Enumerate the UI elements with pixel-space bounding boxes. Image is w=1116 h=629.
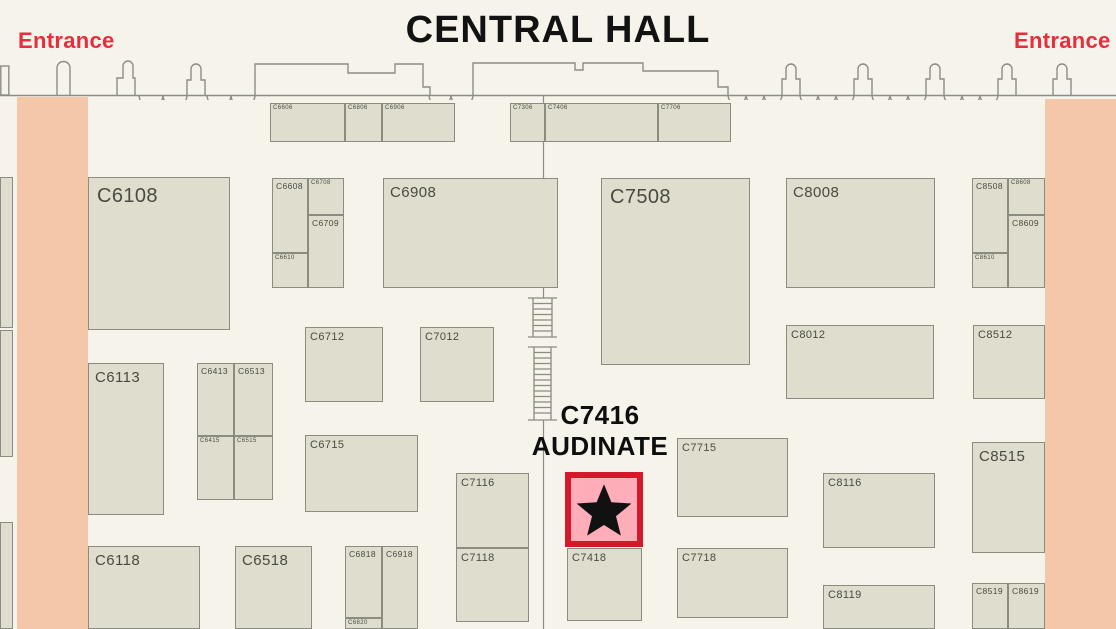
booth-label: [1, 523, 12, 524]
booth-C8610: C8610: [972, 253, 1008, 288]
booth-label: C6806: [346, 104, 381, 111]
booth-label: C8515: [973, 443, 1044, 465]
booth-label: C6906: [383, 104, 454, 111]
booth-label: C6908: [384, 179, 557, 201]
booth-C6413: C6413: [197, 363, 234, 436]
booth-label: C8608: [1009, 179, 1044, 186]
booth-edge: [0, 522, 13, 629]
booth-C8508: C8508: [972, 178, 1008, 253]
booth-C8608: C8608: [1008, 178, 1045, 215]
booth-C6515: C6515: [234, 436, 273, 500]
booth-label: C7118: [457, 549, 528, 564]
booth-C7508: C7508: [601, 178, 750, 365]
booth-C6820: C6820: [345, 618, 382, 629]
booth-C8515: C8515: [972, 442, 1045, 553]
booth-label: C7116: [457, 474, 528, 489]
booth-label: C8619: [1009, 584, 1044, 596]
booth-label: C7012: [421, 328, 493, 343]
entrance-label-left: Entrance: [18, 28, 115, 54]
booth-C8008: C8008: [786, 178, 935, 288]
booth-C8609: C8609: [1008, 215, 1045, 288]
booth-C6708: C6708: [308, 178, 344, 215]
booth-C6818: C6818: [345, 546, 382, 618]
booth-C8512: C8512: [973, 325, 1045, 399]
booth-C8116: C8116: [823, 473, 935, 548]
booth-C6118: C6118: [88, 546, 200, 629]
booth-edge: [0, 330, 13, 457]
booth-C6709: C6709: [308, 215, 344, 288]
booth-label: C8508: [973, 179, 1007, 191]
booth-C7406: C7406: [545, 103, 658, 142]
booth-label: C7706: [659, 104, 730, 111]
floor-map: C6606C6806C6906C7306C7406C7706C6108C6608…: [0, 0, 1116, 629]
booth-C6908: C6908: [383, 178, 558, 288]
booth-C6906: C6906: [382, 103, 455, 142]
booth-C6513: C6513: [234, 363, 273, 436]
booth-C6610: C6610: [272, 253, 308, 288]
booth-label: C6610: [273, 254, 307, 261]
booth-C6518: C6518: [235, 546, 312, 629]
booth-C7718: C7718: [677, 548, 788, 618]
booth-label: C7508: [602, 179, 749, 209]
stairs-icon-upper: [528, 298, 557, 337]
booth-label: C8012: [787, 326, 933, 341]
booth-label: C7306: [511, 104, 544, 111]
booth-label: C6715: [306, 436, 417, 451]
booth-edge: [0, 177, 13, 328]
booth-label: C6518: [236, 547, 311, 569]
booth-label: C8610: [973, 254, 1007, 261]
booth-C8119: C8119: [823, 585, 935, 629]
booth-C6113: C6113: [88, 363, 164, 515]
booth-C6806: C6806: [345, 103, 382, 142]
booth-C7116: C7116: [456, 473, 529, 548]
booth-C8519: C8519: [972, 583, 1008, 629]
booth-C6712: C6712: [305, 327, 383, 402]
booth-label: C8116: [824, 474, 934, 489]
booth-C7118: C7118: [456, 548, 529, 622]
entrance-zone-right: [1045, 99, 1116, 629]
booth-label: C8512: [974, 326, 1044, 341]
booth-label: C6918: [383, 547, 417, 559]
booth-C6918: C6918: [382, 546, 418, 629]
booth-C7706: C7706: [658, 103, 731, 142]
booth-label: C6113: [89, 364, 163, 386]
entrance-label-right: Entrance: [1014, 28, 1111, 54]
booth-label: C6712: [306, 328, 382, 343]
booth-label: C8119: [824, 586, 934, 601]
booth-label: C6818: [346, 547, 381, 559]
entrance-zone-left: [17, 97, 88, 629]
highlight-booth-id: C7416: [490, 400, 710, 431]
booth-C7012: C7012: [420, 327, 494, 402]
booth-label: C6415: [198, 437, 233, 444]
highlight-callout: C7416 AUDINATE: [490, 400, 710, 462]
booth-label: C6515: [235, 437, 272, 444]
booth-C6415: C6415: [197, 436, 234, 500]
highlight-booth[interactable]: [565, 472, 643, 547]
booth-label: [1, 331, 12, 332]
booth-label: C6108: [89, 178, 229, 208]
booth-label: C6708: [309, 179, 343, 186]
booth-label: [1, 178, 12, 179]
booth-label: C6606: [271, 104, 344, 111]
booth-label: C6709: [309, 216, 343, 228]
booth-label: C8609: [1009, 216, 1044, 228]
booth-label: C6118: [89, 547, 199, 569]
booth-label: C6513: [235, 364, 272, 376]
booth-C6715: C6715: [305, 435, 418, 512]
booth-C8619: C8619: [1008, 583, 1045, 629]
booth-label: C6413: [198, 364, 233, 376]
page-title: CENTRAL HALL: [0, 9, 1116, 52]
booth-label: C6608: [273, 179, 307, 191]
booth-C8012: C8012: [786, 325, 934, 399]
highlight-exhibitor: AUDINATE: [490, 431, 710, 462]
booth-label: C8008: [787, 179, 934, 201]
booth-C6108: C6108: [88, 177, 230, 330]
booth-C6608: C6608: [272, 178, 308, 253]
booth-C6606: C6606: [270, 103, 345, 142]
booth-label: C7718: [678, 549, 787, 564]
booth-label: C7418: [568, 549, 641, 564]
star-icon: [574, 480, 634, 540]
booth-label: C7406: [546, 104, 657, 111]
booth-label: C8519: [973, 584, 1007, 596]
booth-C7306: C7306: [510, 103, 545, 142]
booth-label: C6820: [346, 619, 381, 626]
booth-C7418: C7418: [567, 548, 642, 621]
